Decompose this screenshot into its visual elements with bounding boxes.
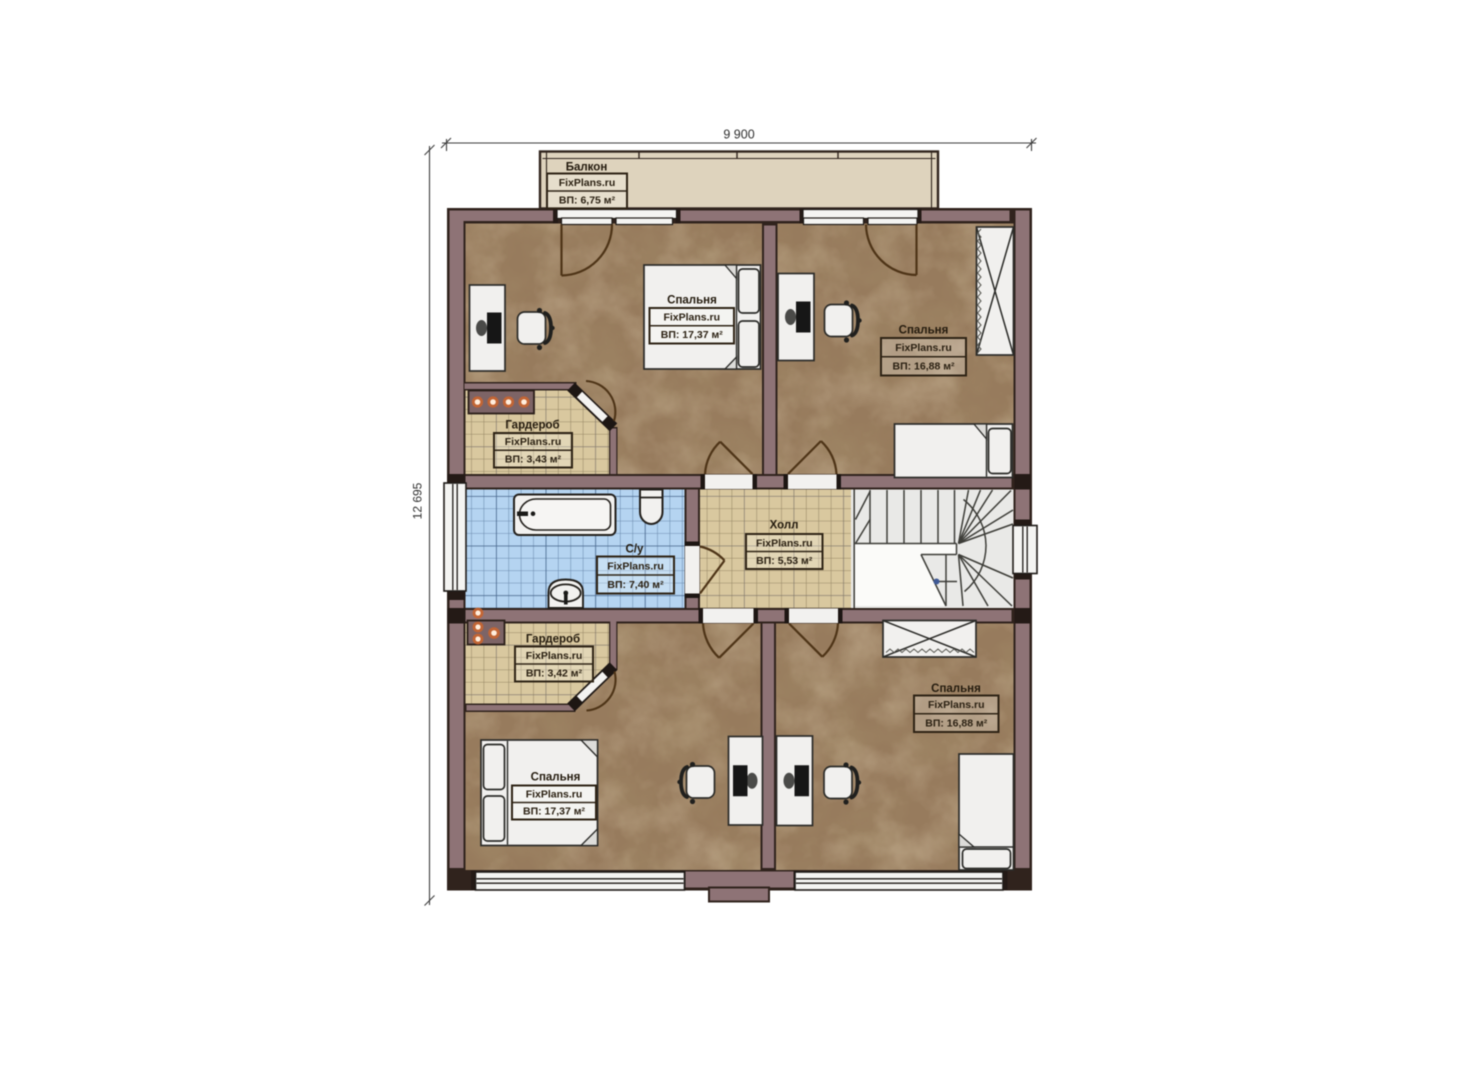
svg-text:С/у: С/у [626,544,645,556]
svg-text:Спальня: Спальня [667,295,717,307]
svg-text:Гардероб: Гардероб [505,420,559,432]
svg-text:9 900: 9 900 [723,128,754,142]
svg-text:ВП: 16,88 м²: ВП: 16,88 м² [892,361,955,373]
svg-text:ВП: 5,53 м²: ВП: 5,53 м² [756,555,813,567]
svg-text:ВП: 6,75 м²: ВП: 6,75 м² [559,194,616,206]
svg-text:FixPlans.ru: FixPlans.ru [663,311,720,323]
svg-text:ВП: 3,43 м²: ВП: 3,43 м² [505,453,562,465]
svg-text:FixPlans.ru: FixPlans.ru [895,342,952,354]
svg-text:ВП: 17,37 м²: ВП: 17,37 м² [523,806,586,818]
svg-text:FixPlans.ru: FixPlans.ru [928,699,985,711]
svg-text:FixPlans.ru: FixPlans.ru [607,560,664,572]
svg-text:Гардероб: Гардероб [526,634,580,646]
svg-text:ВП: 17,37 м²: ВП: 17,37 м² [661,329,724,341]
svg-text:FixPlans.ru: FixPlans.ru [505,436,562,448]
svg-text:FixPlans.ru: FixPlans.ru [526,789,583,801]
svg-text:Спальня: Спальня [899,325,949,337]
svg-text:ВП: 16,88 м²: ВП: 16,88 м² [925,717,988,729]
svg-text:Спальня: Спальня [531,772,581,784]
svg-text:Спальня: Спальня [931,683,981,695]
svg-text:Холл: Холл [770,520,799,532]
svg-text:ВП: 3,42 м²: ВП: 3,42 м² [526,667,583,679]
svg-text:FixPlans.ru: FixPlans.ru [559,177,616,189]
svg-text:Балкон: Балкон [566,162,608,174]
svg-text:FixPlans.ru: FixPlans.ru [526,650,583,662]
svg-text:12 695: 12 695 [411,482,425,519]
svg-text:ВП: 7,40 м²: ВП: 7,40 м² [607,579,664,591]
svg-text:FixPlans.ru: FixPlans.ru [756,537,813,549]
